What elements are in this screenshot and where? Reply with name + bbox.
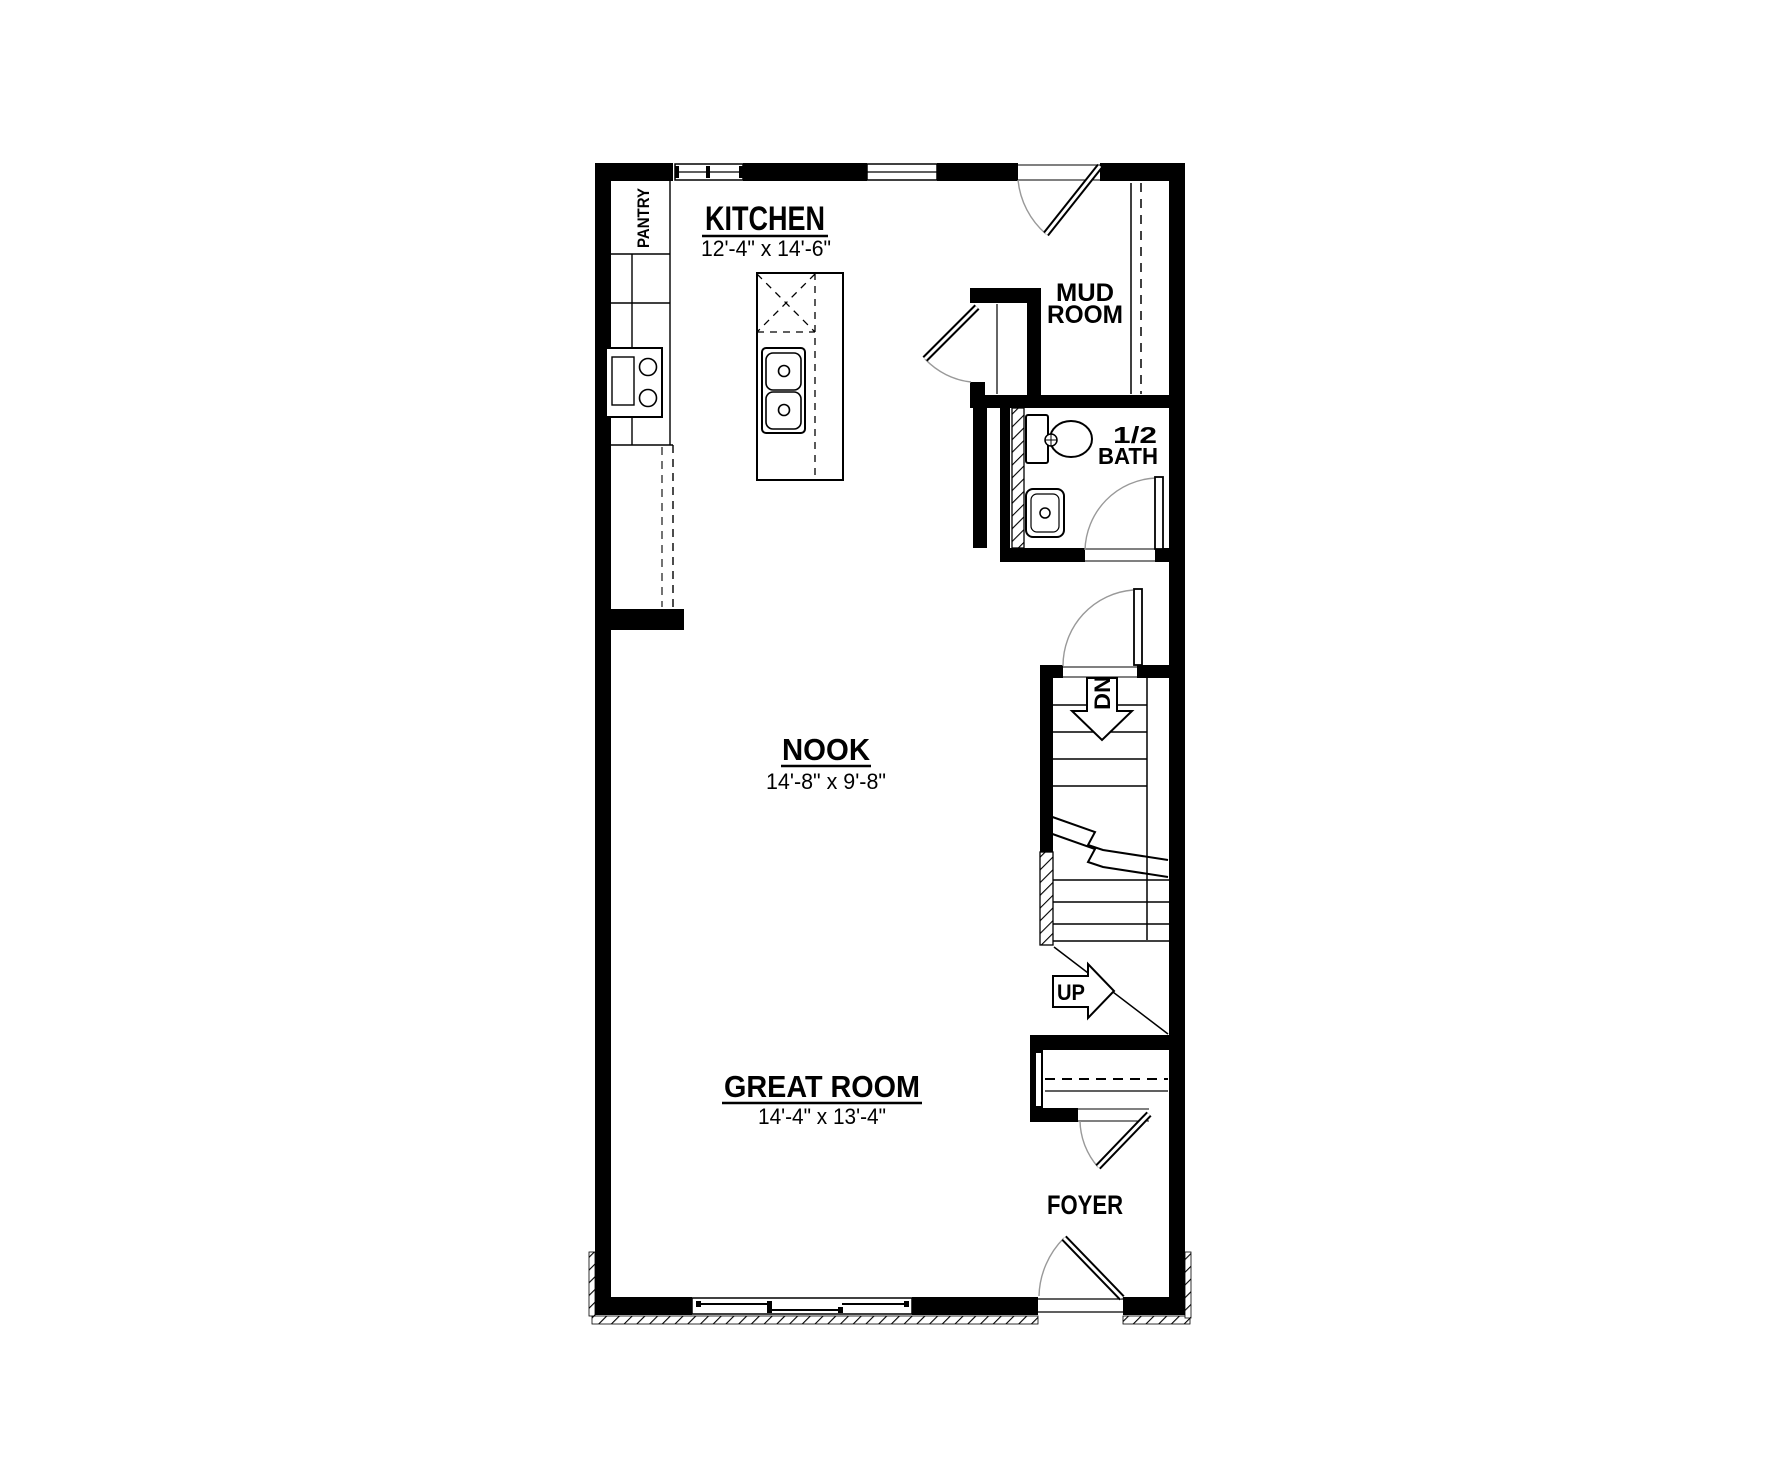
mud-room-entry-door <box>1018 165 1100 234</box>
stairs-up-label: UP <box>1057 980 1085 1005</box>
kitchen-dims: 12'-4" x 14'-6" <box>701 236 831 261</box>
great-room-dims: 14'-4" x 13'-4" <box>758 1104 886 1129</box>
exterior-walls <box>595 163 1185 1315</box>
great-room-slider-window <box>692 1298 912 1314</box>
refrigerator <box>662 445 673 609</box>
floor-plan-svg: KITCHEN 12'-4" x 14'-6" NOOK 14'-8" x 9'… <box>0 0 1780 1480</box>
stair-treads-lower <box>1053 880 1169 941</box>
stair-break-lines <box>1044 814 1168 877</box>
bath-plumbing-wall <box>1012 408 1024 548</box>
labels: KITCHEN 12'-4" x 14'-6" NOOK 14'-8" x 9'… <box>634 187 1158 1220</box>
floor-plan-page: KITCHEN 12'-4" x 14'-6" NOOK 14'-8" x 9'… <box>0 0 1780 1480</box>
kitchen-window-single <box>867 164 937 180</box>
coat-closet-rod-shelf <box>1045 1079 1168 1091</box>
mud-room-label-line2: ROOM <box>1047 301 1123 329</box>
kitchen-label: KITCHEN <box>705 200 825 238</box>
island-double-sink <box>762 348 805 433</box>
stairs-down-label: DN <box>1090 676 1115 710</box>
nook-label: NOOK <box>782 732 871 767</box>
front-door <box>1038 1238 1123 1312</box>
closet-wall-cavity <box>1036 1053 1041 1106</box>
pantry-label: PANTRY <box>634 187 653 248</box>
bath-sink <box>1026 489 1064 537</box>
stair-half-wall <box>1040 852 1053 945</box>
kitchen-island <box>757 273 843 480</box>
foyer-label: FOYER <box>1047 1190 1123 1220</box>
mud-room-shelf <box>1131 183 1141 394</box>
nook-dims: 14'-8" x 9'-8" <box>766 769 886 794</box>
kitchen-window-double <box>675 164 743 180</box>
basement-door <box>1063 589 1142 677</box>
half-bath-label-line2: BATH <box>1098 443 1158 469</box>
great-room-label: GREAT ROOM <box>724 1069 920 1104</box>
mud-closet-door <box>925 307 977 382</box>
half-bath-door <box>1085 477 1163 561</box>
coat-closet-door <box>1078 1109 1149 1167</box>
range <box>606 348 662 417</box>
toilet <box>1026 415 1092 463</box>
